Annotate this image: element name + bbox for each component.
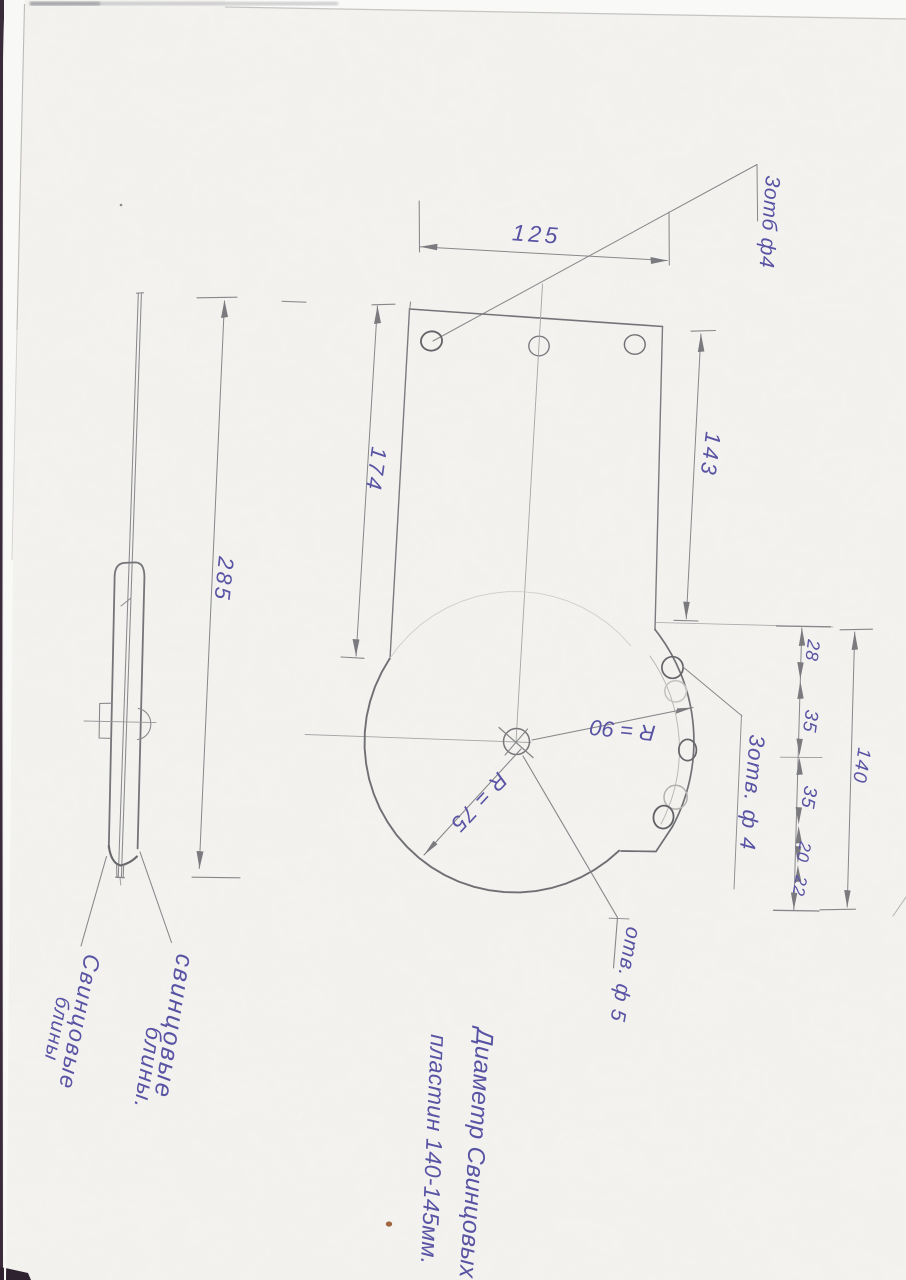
svg-text:22: 22 xyxy=(788,873,811,898)
svg-text:20: 20 xyxy=(792,839,815,864)
svg-text:35: 35 xyxy=(796,784,821,810)
svg-text:285: 285 xyxy=(209,554,239,603)
svg-text:125: 125 xyxy=(511,219,562,248)
svg-text:28: 28 xyxy=(801,638,824,663)
svg-text:35: 35 xyxy=(798,708,822,734)
